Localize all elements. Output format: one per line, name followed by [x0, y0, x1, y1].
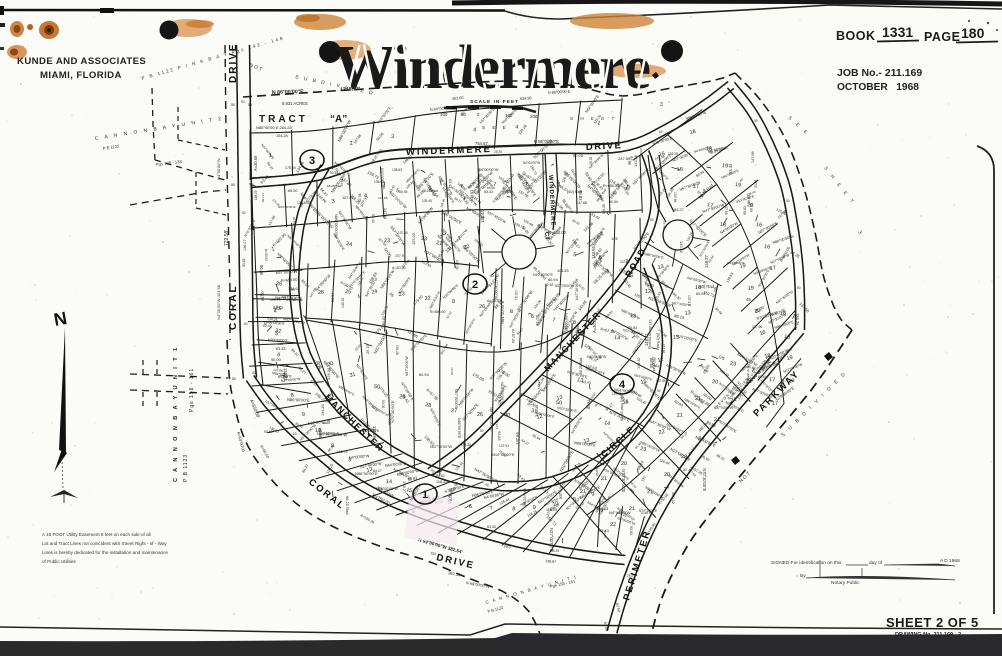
svg-text:137.66: 137.66	[398, 231, 408, 235]
svg-text:(50) Rad: (50) Rad	[698, 284, 715, 289]
svg-text:50: 50	[786, 199, 790, 203]
svg-text:50: 50	[242, 211, 246, 215]
svg-text:754.57: 754.57	[475, 141, 488, 146]
svg-text:BOOK: BOOK	[836, 29, 876, 43]
svg-text:23: 23	[730, 361, 737, 368]
svg-text:175.00: 175.00	[285, 166, 296, 170]
svg-text:19: 19	[735, 182, 742, 189]
svg-text:125: 125	[444, 192, 448, 198]
svg-text:A=30.55: A=30.55	[449, 488, 453, 501]
svg-text:84.27: 84.27	[450, 367, 454, 375]
svg-text:60: 60	[713, 287, 718, 292]
svg-text:26: 26	[318, 290, 324, 296]
svg-text:50.00: 50.00	[259, 265, 264, 276]
svg-text:N64°00'00"E: N64°00'00"E	[278, 205, 296, 209]
svg-text:103.45: 103.45	[387, 412, 392, 425]
svg-text:68.25 Rad: 68.25 Rad	[579, 358, 583, 374]
svg-text:134.26: 134.26	[321, 404, 325, 416]
svg-text:50: 50	[650, 218, 654, 222]
svg-text:50: 50	[231, 103, 235, 107]
svg-text:149.32: 149.32	[671, 492, 676, 504]
svg-text:N27°00'00"E: N27°00'00"E	[549, 528, 554, 552]
svg-text:OCTOBER 1968: OCTOBER 1968	[837, 82, 919, 93]
svg-text:1: 1	[422, 489, 428, 501]
svg-text:TRACT: TRACT	[259, 114, 308, 125]
svg-text:63.43: 63.43	[484, 190, 493, 194]
svg-text:138.63: 138.63	[297, 201, 307, 205]
svg-text:138.63: 138.63	[470, 190, 474, 201]
svg-text:Lines is hereby dedicated: Lines is hereby dedicated for the instal…	[42, 550, 168, 555]
svg-text:A=30.55: A=30.55	[264, 249, 268, 261]
svg-text:148.27: 148.27	[243, 239, 247, 251]
svg-text:N27°00'00"E: N27°00'00"E	[454, 389, 458, 410]
svg-text:A 16 FOOT Utility Easement: A 16 FOOT Utility Easement 8 feet on eac…	[42, 532, 151, 537]
svg-text:137.66: 137.66	[648, 319, 652, 331]
svg-text:2: 2	[472, 279, 478, 291]
svg-text:63.43: 63.43	[448, 179, 452, 188]
svg-text:27: 27	[451, 408, 458, 415]
svg-text:65.00: 65.00	[261, 291, 265, 301]
svg-text:40: 40	[252, 371, 256, 375]
svg-text:148.27: 148.27	[402, 481, 407, 494]
svg-text:134.26: 134.26	[461, 443, 471, 447]
svg-text:93.83: 93.83	[629, 526, 633, 535]
svg-text:PAGE: PAGE	[924, 30, 961, 44]
svg-text:93.83: 93.83	[318, 428, 322, 436]
svg-text:23: 23	[640, 446, 647, 453]
svg-text:50.00: 50.00	[639, 148, 643, 156]
svg-text:63.43: 63.43	[662, 221, 666, 229]
svg-text:137.66: 137.66	[576, 201, 587, 205]
svg-text:125.00: 125.00	[411, 232, 416, 245]
svg-text:95.83: 95.83	[595, 468, 599, 476]
svg-text:N37°00'00"W: N37°00'00"W	[555, 284, 574, 288]
svg-text:S E E: S E E	[482, 125, 509, 130]
svg-text:N57°30'00"W: N57°30'00"W	[405, 355, 409, 376]
svg-text:63.43: 63.43	[276, 347, 286, 351]
svg-text:JOB No.- 211.169: JOB No.- 211.169	[837, 67, 922, 79]
svg-text:45: 45	[746, 297, 751, 302]
svg-text:By: By	[800, 573, 806, 579]
svg-text:60.94: 60.94	[548, 277, 559, 282]
svg-text:22: 22	[610, 522, 616, 528]
svg-text:50: 50	[232, 377, 236, 381]
svg-text:93.83: 93.83	[382, 316, 386, 325]
svg-text:125: 125	[278, 342, 283, 346]
svg-text:138.63: 138.63	[283, 368, 288, 381]
svg-text:180: 180	[961, 25, 985, 41]
svg-text:50.00: 50.00	[271, 357, 282, 362]
svg-text:63.43: 63.43	[487, 525, 496, 529]
svg-text:125: 125	[611, 236, 618, 241]
svg-text:N70°30'00"E: N70°30'00"E	[746, 366, 750, 384]
svg-text:SHEET 2 OF 5: SHEET 2 OF 5	[886, 615, 979, 630]
svg-text:126.44: 126.44	[480, 210, 485, 223]
svg-text:95.83: 95.83	[628, 326, 637, 330]
svg-text:N57°30'00"W: N57°30'00"W	[489, 407, 494, 431]
svg-text:4: 4	[619, 379, 626, 391]
svg-text:118.25: 118.25	[436, 480, 447, 484]
svg-text:21: 21	[677, 412, 684, 419]
svg-text:N70°30'00"E: N70°30'00"E	[621, 469, 626, 492]
svg-text:84.27: 84.27	[674, 207, 684, 212]
svg-text:MIAMI, FLORIDA: MIAMI, FLORIDA	[40, 70, 122, 81]
svg-text:N86°00'00"W: N86°00'00"W	[334, 214, 339, 238]
svg-text:157.66: 157.66	[656, 379, 666, 383]
svg-text:149.32: 149.32	[679, 241, 684, 253]
svg-text:19: 19	[788, 378, 795, 385]
svg-text:143.66: 143.66	[633, 155, 638, 167]
svg-text:N57°30'00"W: N57°30'00"W	[430, 445, 452, 449]
svg-text:N4°00'00"W: N4°00'00"W	[609, 510, 631, 515]
svg-text:CORAL: CORAL	[228, 284, 239, 330]
svg-text:19: 19	[748, 285, 755, 292]
svg-text:159.73: 159.73	[337, 450, 347, 454]
svg-text:125: 125	[558, 491, 562, 497]
svg-text:A=67.35: A=67.35	[511, 329, 515, 343]
svg-text:147.58: 147.58	[261, 193, 265, 203]
svg-text:50: 50	[797, 286, 801, 290]
svg-text:Pgs 158 - 161: Pgs 158 - 161	[189, 368, 195, 412]
svg-text:N86°00'00 E 264.28': N86°00'00 E 264.28'	[256, 125, 293, 130]
svg-text:118.25: 118.25	[372, 426, 377, 439]
svg-text:22: 22	[658, 429, 665, 436]
svg-text:95.83: 95.83	[619, 411, 624, 421]
svg-text:107.91: 107.91	[687, 295, 691, 305]
svg-text:N10°00'00"E: N10°00'00"E	[492, 452, 515, 457]
svg-text:63.43: 63.43	[728, 163, 733, 174]
svg-text:N 86°00'00"E: N 86°00'00"E	[272, 89, 304, 96]
svg-text:Notary Public: Notary Public	[831, 580, 860, 586]
svg-text:50: 50	[480, 429, 484, 433]
svg-text:DRIVE: DRIVE	[228, 42, 239, 83]
svg-text:104.28: 104.28	[276, 134, 288, 138]
svg-text:A=30.55: A=30.55	[592, 317, 597, 333]
svg-text:14: 14	[386, 479, 392, 485]
svg-text:14: 14	[604, 420, 611, 427]
svg-text:68.25 Rad: 68.25 Rad	[523, 488, 527, 506]
svg-text:Lot and Tract Lines not c: Lot and Tract Lines not coincident with …	[42, 541, 167, 546]
svg-text:day of: day of	[869, 560, 883, 566]
svg-text:118.25: 118.25	[668, 152, 678, 156]
svg-text:147.58: 147.58	[724, 204, 728, 215]
svg-text:200: 200	[530, 114, 538, 119]
svg-text:143.66: 143.66	[591, 246, 596, 259]
svg-text:137.66: 137.66	[515, 432, 520, 445]
svg-text:50.00: 50.00	[573, 153, 584, 158]
svg-text:C A N N O N B A Y U N I T: C A N N O N B A Y U N I T 1	[173, 346, 179, 483]
svg-text:3: 3	[309, 155, 315, 167]
svg-text:722.58': 722.58'	[224, 230, 230, 246]
svg-text:147.58: 147.58	[751, 151, 755, 163]
svg-text:N70°30'00"E: N70°30'00"E	[702, 468, 707, 491]
svg-text:21: 21	[601, 476, 607, 482]
svg-text:SIGNED For identification: SIGNED For identification on this	[771, 560, 842, 566]
svg-text:17: 17	[770, 265, 777, 272]
svg-text:634.98: 634.98	[520, 96, 532, 101]
svg-text:60.94: 60.94	[399, 190, 408, 194]
svg-text:50: 50	[754, 119, 758, 123]
svg-text:50: 50	[248, 103, 252, 107]
svg-text:A D 1968: A D 1968	[940, 558, 960, 564]
svg-text:93.83: 93.83	[497, 431, 501, 441]
svg-text:1331: 1331	[882, 24, 913, 40]
svg-text:N4°00'00"W 423.58: N4°00'00"W 423.58	[216, 284, 221, 320]
svg-text:DRIVE: DRIVE	[586, 140, 623, 153]
svg-text:N64°00'00"E: N64°00'00"E	[500, 301, 505, 324]
svg-text:125.00: 125.00	[326, 367, 331, 380]
svg-text:88.10: 88.10	[273, 305, 284, 310]
svg-text:50: 50	[241, 100, 245, 104]
svg-text:149.32: 149.32	[637, 357, 641, 369]
svg-text:3: 3	[391, 134, 394, 140]
svg-text:103.45: 103.45	[292, 216, 296, 226]
svg-text:147.58: 147.58	[535, 315, 539, 326]
svg-text:138.63: 138.63	[374, 180, 384, 184]
svg-text:137.66: 137.66	[752, 325, 762, 329]
svg-text:18: 18	[689, 129, 696, 136]
svg-text:of Public Utilities: of Public Utilities	[42, 559, 76, 564]
svg-text:N4°00'00"W: N4°00'00"W	[587, 355, 607, 359]
svg-text:103.45: 103.45	[534, 404, 539, 417]
svg-text:13: 13	[684, 310, 691, 317]
svg-text:8: 8	[510, 309, 513, 315]
svg-text:R=650.00: R=650.00	[430, 310, 445, 314]
svg-text:65.00: 65.00	[603, 530, 607, 538]
svg-text:6: 6	[531, 314, 534, 320]
svg-text:60.94: 60.94	[696, 292, 706, 296]
svg-text:147.58: 147.58	[383, 208, 387, 219]
svg-text:22: 22	[425, 295, 432, 302]
svg-text:18: 18	[784, 334, 791, 341]
svg-text:60.94: 60.94	[609, 200, 618, 204]
svg-text:25 25: 25 25	[494, 150, 502, 154]
svg-text:68.25 Rad: 68.25 Rad	[345, 496, 350, 514]
svg-text:N86°00'00"E: N86°00'00"E	[287, 397, 310, 403]
svg-text:65.00: 65.00	[288, 189, 298, 193]
svg-text:25 25: 25 25	[365, 344, 370, 354]
svg-text:93.83: 93.83	[264, 430, 273, 434]
svg-text:60.94: 60.94	[331, 292, 335, 302]
svg-text:107.91: 107.91	[395, 254, 406, 258]
svg-text:N64°00'00"E: N64°00'00"E	[727, 261, 745, 265]
svg-text:17: 17	[769, 377, 776, 384]
svg-text:138.63: 138.63	[392, 168, 402, 172]
svg-text:(50) Rad: (50) Rad	[567, 189, 582, 194]
svg-text:(50) Rad: (50) Rad	[656, 333, 660, 348]
svg-text:19: 19	[786, 355, 793, 362]
svg-text:N10°00'00"E: N10°00'00"E	[380, 168, 384, 188]
svg-text:N4°00'00"W: N4°00'00"W	[216, 158, 221, 180]
svg-text:157.66: 157.66	[662, 344, 666, 354]
svg-text:3: 3	[660, 102, 663, 108]
svg-text:8: 8	[452, 299, 455, 305]
svg-text:60: 60	[659, 130, 663, 134]
svg-text:50.00: 50.00	[749, 203, 753, 212]
svg-text:50.00: 50.00	[381, 400, 385, 408]
svg-text:20: 20	[712, 379, 719, 386]
svg-text:KUNDE AND ASSOCIATES: KUNDE AND ASSOCIATES	[17, 56, 146, 67]
svg-text:68.25 Rad: 68.25 Rad	[422, 189, 438, 193]
svg-text:63.43: 63.43	[263, 324, 272, 328]
svg-text:134.26: 134.26	[395, 345, 399, 355]
svg-text:50: 50	[231, 183, 235, 187]
svg-text:93.83: 93.83	[754, 180, 758, 188]
svg-text:9: 9	[302, 412, 305, 418]
svg-text:60.94: 60.94	[576, 325, 580, 333]
svg-text:60: 60	[293, 432, 297, 436]
svg-text:107.91: 107.91	[499, 444, 509, 448]
svg-text:175.00: 175.00	[340, 177, 344, 187]
svg-text:N86°00'00"E: N86°00'00"E	[457, 418, 461, 439]
svg-text:88.10: 88.10	[649, 358, 654, 369]
svg-text:16: 16	[677, 167, 683, 173]
svg-text:25 25: 25 25	[589, 157, 593, 165]
svg-text:137.66: 137.66	[378, 196, 388, 200]
svg-text:103.45: 103.45	[422, 199, 432, 203]
svg-text:N86°00'00"E: N86°00'00"E	[564, 313, 568, 335]
svg-text:N86°00'00"E: N86°00'00"E	[355, 471, 378, 476]
svg-text:118.25: 118.25	[254, 190, 258, 200]
svg-text:DRAWING No. 211.169 - 2: DRAWING No. 211.169 - 2	[895, 632, 961, 638]
svg-text:103.45: 103.45	[557, 269, 569, 273]
svg-text:95.83: 95.83	[743, 206, 747, 215]
svg-text:A=30.55: A=30.55	[253, 155, 258, 171]
svg-text:26: 26	[477, 412, 483, 418]
svg-text:134.26: 134.26	[602, 204, 606, 214]
svg-text:134.26: 134.26	[795, 313, 800, 326]
svg-text:(50) Rad: (50) Rad	[620, 395, 624, 410]
svg-text:50: 50	[683, 468, 687, 472]
svg-text:68.25 Rad: 68.25 Rad	[327, 184, 342, 188]
svg-text:52 52: 52 52	[490, 274, 499, 278]
svg-text:16: 16	[764, 244, 771, 251]
svg-text:A=30.55: A=30.55	[487, 299, 501, 303]
svg-text:60: 60	[244, 322, 248, 326]
svg-text:N70°30'00"E: N70°30'00"E	[639, 509, 657, 513]
svg-text:52 52: 52 52	[545, 283, 553, 287]
svg-text:21: 21	[580, 489, 586, 495]
svg-text:N4°00'00"W: N4°00'00"W	[478, 168, 499, 172]
svg-text:5: 5	[275, 331, 278, 337]
svg-text:N37°00'00"W: N37°00'00"W	[714, 406, 733, 410]
svg-text:R=650.00: R=650.00	[548, 230, 567, 235]
svg-text:107.91: 107.91	[620, 260, 630, 264]
svg-text:118.25: 118.25	[546, 508, 557, 512]
svg-text:SCALE IN FEET: SCALE IN FEET	[470, 99, 519, 105]
svg-text:N47°30'00"W: N47°30'00"W	[575, 278, 579, 300]
svg-text:8.931 ACRES: 8.931 ACRES	[282, 101, 308, 106]
svg-text:107.91: 107.91	[514, 290, 518, 300]
svg-text:P B 1123: P B 1123	[183, 454, 189, 482]
svg-text:93.83: 93.83	[242, 258, 246, 267]
svg-text:20: 20	[621, 461, 627, 467]
svg-text:137.66: 137.66	[673, 192, 677, 202]
svg-text:N4°00'00"W: N4°00'00"W	[523, 161, 540, 165]
svg-text:149.32: 149.32	[341, 298, 345, 308]
svg-text:63.43: 63.43	[371, 214, 375, 223]
svg-text:16: 16	[756, 222, 763, 229]
svg-text:60.94: 60.94	[419, 372, 430, 377]
svg-text:138.63: 138.63	[288, 287, 300, 291]
svg-text:107.91: 107.91	[455, 260, 459, 270]
svg-text:107.91: 107.91	[495, 419, 499, 429]
svg-text:24: 24	[346, 241, 353, 248]
